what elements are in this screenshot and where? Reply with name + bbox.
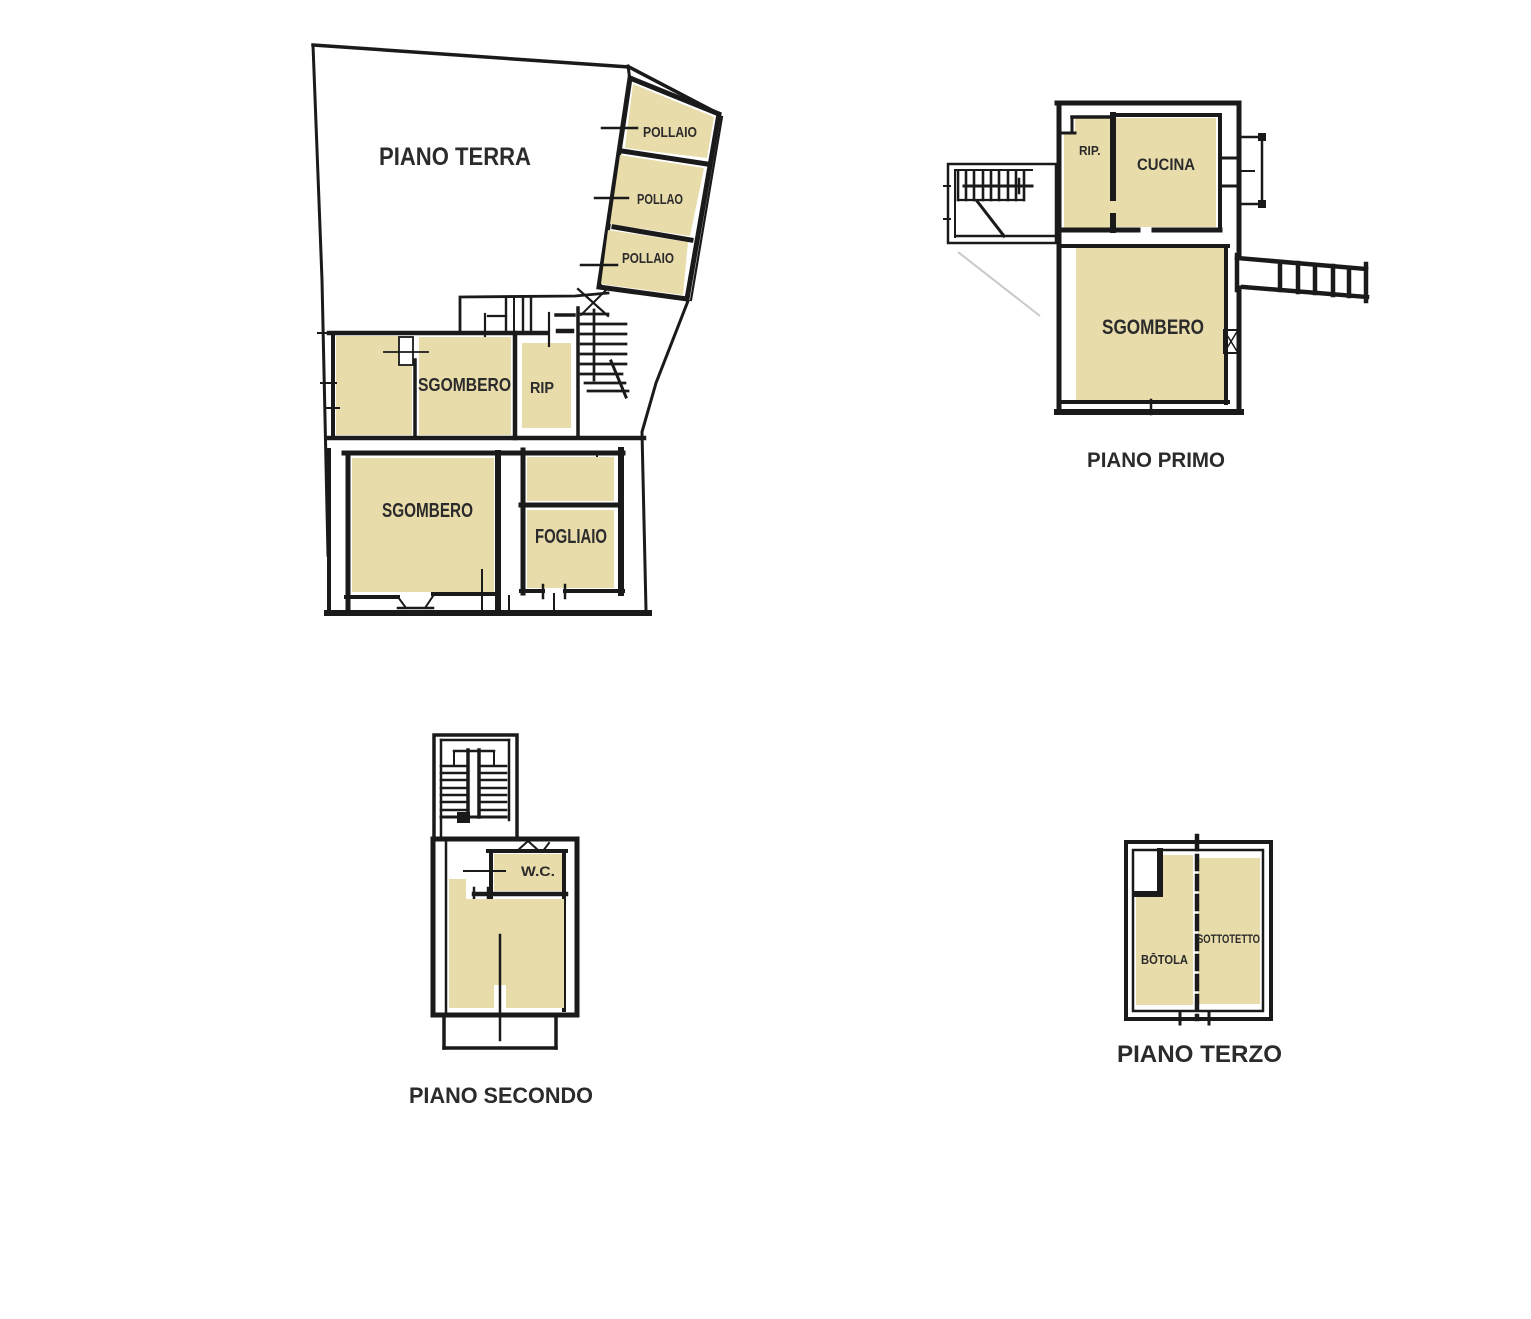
- svg-text:FOGLIAIO: FOGLIAIO: [535, 526, 607, 548]
- svg-text:SGOMBERO: SGOMBERO: [382, 500, 473, 522]
- svg-text:POLLAIO: POLLAIO: [643, 124, 697, 141]
- svg-text:BŌTOLA: BŌTOLA: [1141, 952, 1189, 967]
- svg-text:PIANO TERZO: PIANO TERZO: [1117, 1041, 1282, 1068]
- svg-text:W.C.: W.C.: [521, 863, 555, 879]
- svg-text:SGOMBERO: SGOMBERO: [1102, 316, 1204, 339]
- svg-text:POLLAIO: POLLAIO: [622, 250, 674, 267]
- svg-text:PIANO PRIMO: PIANO PRIMO: [1087, 449, 1225, 472]
- svg-text:RIP.: RIP.: [1079, 144, 1101, 158]
- svg-text:PIANO TERRA: PIANO TERRA: [379, 143, 531, 171]
- svg-text:SGOMBERO: SGOMBERO: [418, 375, 511, 395]
- svg-text:PIANO SECONDO: PIANO SECONDO: [409, 1083, 593, 1108]
- svg-text:SOTTOTETTO: SOTTOTETTO: [1197, 934, 1260, 946]
- svg-text:POLLAO: POLLAO: [637, 191, 683, 208]
- svg-text:RIP: RIP: [530, 380, 554, 397]
- svg-text:CUCINA: CUCINA: [1137, 155, 1195, 174]
